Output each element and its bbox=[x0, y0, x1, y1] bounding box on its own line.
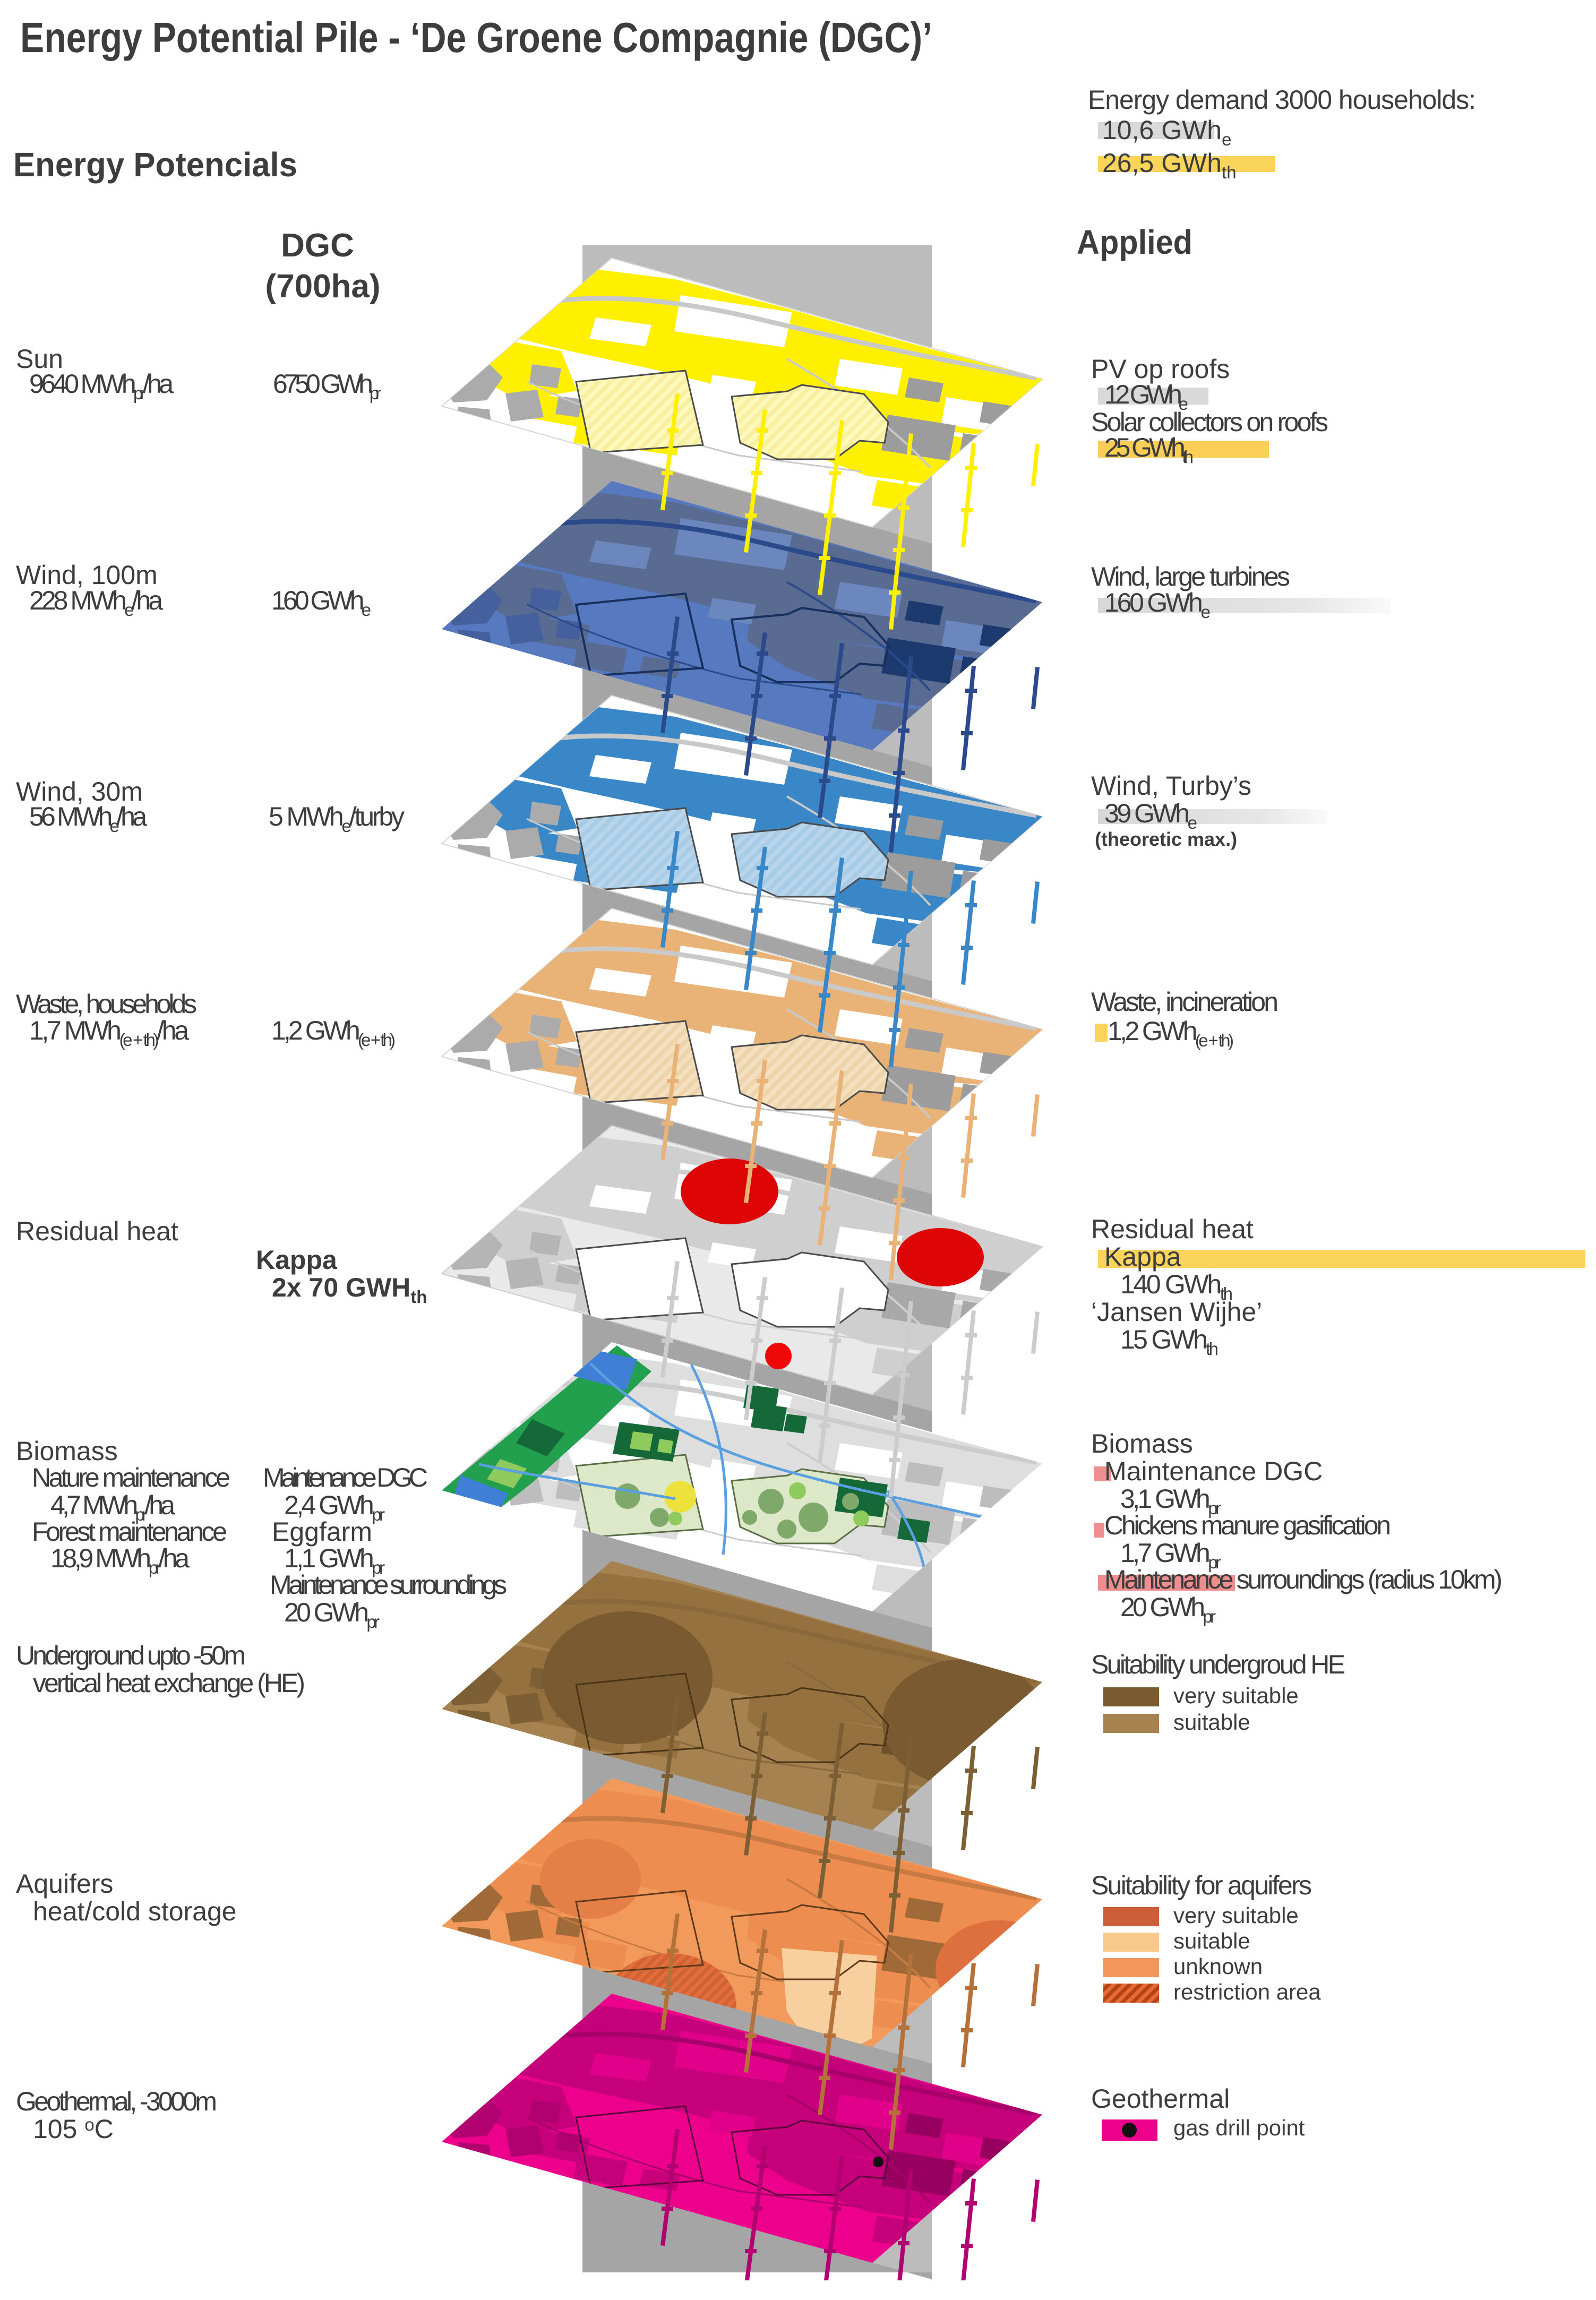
svg-text:Wind, Turby’s: Wind, Turby’s bbox=[1091, 771, 1251, 801]
svg-text:Residual heat: Residual heat bbox=[1091, 1214, 1254, 1244]
svg-text:heat/cold storage: heat/cold storage bbox=[33, 1896, 237, 1926]
svg-text:Maintenance surroundings (radi: Maintenance surroundings (radius 10km) bbox=[1104, 1565, 1503, 1594]
svg-text:very suitable: very suitable bbox=[1173, 1903, 1299, 1928]
svg-text:Maintenance surroundings: Maintenance surroundings bbox=[270, 1570, 507, 1600]
svg-text:160 GWhe: 160 GWhe bbox=[271, 586, 371, 620]
svg-text:Biomass: Biomass bbox=[1091, 1429, 1193, 1458]
svg-text:15 GWhth: 15 GWhth bbox=[1120, 1325, 1219, 1359]
svg-text:suitable: suitable bbox=[1173, 1710, 1250, 1735]
svg-text:Biomass: Biomass bbox=[16, 1436, 118, 1466]
svg-text:Energy Potential Pile - ‘De Gr: Energy Potential Pile - ‘De Groene Compa… bbox=[20, 14, 932, 61]
svg-text:(700ha): (700ha) bbox=[265, 268, 380, 305]
svg-text:Suitability for aquifers: Suitability for aquifers bbox=[1091, 1870, 1312, 1900]
svg-text:restriction area: restriction area bbox=[1173, 1979, 1321, 2004]
svg-text:Maintenance DGC: Maintenance DGC bbox=[263, 1463, 428, 1492]
svg-text:vertical heat exchange (HE): vertical heat exchange (HE) bbox=[33, 1668, 305, 1698]
svg-text:Forest maintenance: Forest maintenance bbox=[32, 1517, 227, 1547]
svg-text:Aquifers: Aquifers bbox=[16, 1869, 113, 1899]
svg-text:2x 70 GWHth: 2x 70 GWHth bbox=[272, 1273, 427, 1307]
svg-text:Nature maintenance: Nature maintenance bbox=[32, 1463, 230, 1492]
svg-text:Waste, households: Waste, households bbox=[16, 989, 197, 1019]
svg-text:20 GWhpr: 20 GWhpr bbox=[284, 1598, 380, 1632]
svg-text:5 MWhe/turby: 5 MWhe/turby bbox=[269, 802, 405, 836]
svg-text:DGC: DGC bbox=[281, 227, 354, 264]
svg-text:Maintenance DGC: Maintenance DGC bbox=[1104, 1456, 1323, 1486]
svg-text:25 GWhth: 25 GWhth bbox=[1104, 433, 1194, 467]
svg-text:1,2 GWh(e + th): 1,2 GWh(e + th) bbox=[271, 1016, 396, 1050]
svg-text:Energy Potencials: Energy Potencials bbox=[13, 145, 297, 184]
svg-text:26,5 GWhth: 26,5 GWhth bbox=[1102, 148, 1237, 182]
svg-text:9640 MWhpr/ha: 9640 MWhpr/ha bbox=[29, 369, 174, 403]
svg-text:Kappa: Kappa bbox=[256, 1245, 338, 1275]
svg-text:Eggfarm: Eggfarm bbox=[272, 1517, 372, 1547]
svg-text:unknown: unknown bbox=[1173, 1954, 1263, 1979]
svg-text:228 MWhe/ha: 228 MWhe/ha bbox=[29, 586, 163, 620]
svg-text:20 GWhpr: 20 GWhpr bbox=[1120, 1592, 1216, 1626]
svg-text:1,2 GWh(e + th): 1,2 GWh(e + th) bbox=[1108, 1016, 1234, 1050]
svg-text:(theoretic max.): (theoretic max.) bbox=[1095, 828, 1237, 850]
svg-text:Waste, incineration: Waste, incineration bbox=[1091, 987, 1278, 1017]
svg-text:Energy demand 3000 households:: Energy demand 3000 households: bbox=[1088, 85, 1476, 115]
svg-text:Residual heat: Residual heat bbox=[16, 1216, 178, 1246]
svg-text:105 oC: 105 oC bbox=[33, 2114, 114, 2144]
svg-text:160 GWhe: 160 GWhe bbox=[1104, 588, 1211, 622]
svg-text:10,6 GWhe: 10,6 GWhe bbox=[1102, 115, 1231, 149]
svg-text:Suitability undergroud HE: Suitability undergroud HE bbox=[1091, 1650, 1345, 1679]
svg-text:Wind, large turbines: Wind, large turbines bbox=[1091, 562, 1290, 591]
svg-text:6750 GWhpr: 6750 GWhpr bbox=[273, 369, 381, 403]
svg-text:Applied: Applied bbox=[1077, 223, 1192, 261]
svg-text:gas drill point: gas drill point bbox=[1173, 2115, 1305, 2140]
svg-text:Geothermal: Geothermal bbox=[1091, 2084, 1230, 2114]
svg-text:Chickens manure gasification: Chickens manure gasification bbox=[1104, 1511, 1391, 1540]
svg-text:very suitable: very suitable bbox=[1173, 1683, 1299, 1708]
svg-text:56 MWhe/ha: 56 MWhe/ha bbox=[29, 802, 147, 836]
svg-text:39 GWhe: 39 GWhe bbox=[1104, 799, 1197, 833]
svg-text:18,9 MWhpr/ha: 18,9 MWhpr/ha bbox=[50, 1543, 190, 1577]
svg-text:Geothermal, -3000m: Geothermal, -3000m bbox=[16, 2087, 217, 2116]
svg-text:1,7 MWh(e + th)/ha: 1,7 MWh(e + th)/ha bbox=[29, 1016, 189, 1050]
svg-text:Underground upto -50m: Underground upto -50m bbox=[16, 1641, 246, 1670]
svg-text:‘Jansen Wijhe’: ‘Jansen Wijhe’ bbox=[1091, 1297, 1262, 1327]
svg-text:Kappa: Kappa bbox=[1104, 1242, 1181, 1272]
svg-text:suitable: suitable bbox=[1173, 1928, 1250, 1953]
